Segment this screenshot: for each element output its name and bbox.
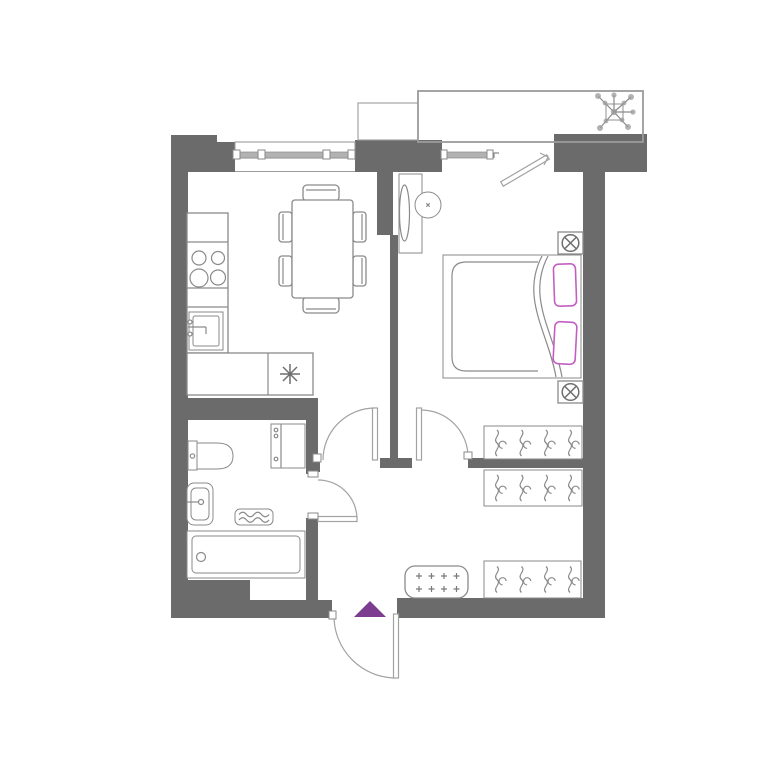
- dining-set: [279, 185, 366, 313]
- dining-table: [292, 200, 353, 298]
- balcony-door-leaf: [501, 155, 550, 186]
- wardrobe-hall-lower: [484, 561, 581, 598]
- kitchen-door-jamb: [313, 454, 321, 462]
- bedroom-door-leaf: [417, 408, 422, 460]
- kitchen-living-room: [187, 185, 366, 395]
- wall-top-right-block: [554, 134, 647, 172]
- entry-door-arc: [334, 616, 396, 678]
- balcony-side-ledge: [358, 103, 418, 140]
- bedroom-door-arc: [421, 410, 468, 457]
- plant-icon: [595, 92, 636, 131]
- bedroom: [399, 174, 583, 459]
- toilet-icon: [188, 441, 233, 470]
- entry-door-leaf: [394, 614, 399, 678]
- bedroom-door-jamb: [464, 452, 472, 459]
- wardrobe-hall-upper: [484, 470, 582, 506]
- bedroom-window: [441, 150, 549, 186]
- wall-top-middle-block: [355, 140, 442, 172]
- hallway: [354, 470, 582, 617]
- wall-partition-stub: [377, 172, 393, 235]
- kitchen-door-arc: [323, 408, 375, 460]
- spotlight-icon: [558, 232, 583, 254]
- bathroom-door-jamb-bottom: [308, 513, 318, 519]
- dressing-table-icon: [399, 174, 441, 253]
- asterisk-appliance-icon: [280, 364, 300, 384]
- wall-hall-north-center: [380, 458, 412, 468]
- entry-door-jamb: [329, 611, 336, 619]
- bathroom-door-jamb-top: [308, 471, 318, 477]
- wall-bottom-right: [397, 598, 605, 618]
- washing-machine-icon: [271, 424, 305, 468]
- kitchen-sink-icon: [188, 312, 223, 350]
- wall-left: [171, 142, 188, 618]
- washbasin-icon: [187, 483, 213, 525]
- spotlight-icon: [558, 381, 583, 403]
- kitchen-door-leaf: [373, 408, 378, 460]
- towel-radiator-icon: [235, 509, 273, 525]
- floor-plan: [0, 0, 768, 768]
- bathtub-icon: [187, 531, 305, 578]
- pillow: [553, 264, 576, 307]
- wall-hall-west-lower: [306, 518, 318, 604]
- wardrobe-bedroom: [484, 426, 582, 459]
- wall-top-left-step: [217, 142, 235, 172]
- shoe-bench-icon: [405, 566, 468, 598]
- double-bed-icon: [443, 255, 581, 378]
- bathroom: [187, 424, 305, 578]
- entrance-marker-icon: [354, 601, 386, 617]
- wall-bathroom-north: [171, 398, 318, 420]
- pillow: [553, 321, 577, 364]
- wall-bathroom-south-thick: [171, 580, 250, 618]
- wall-partition-thin: [390, 235, 398, 458]
- bathroom-door-leaf: [318, 517, 357, 522]
- wall-right: [583, 172, 605, 618]
- kitchen-window: [233, 142, 355, 172]
- bathroom-door-arc: [318, 480, 357, 519]
